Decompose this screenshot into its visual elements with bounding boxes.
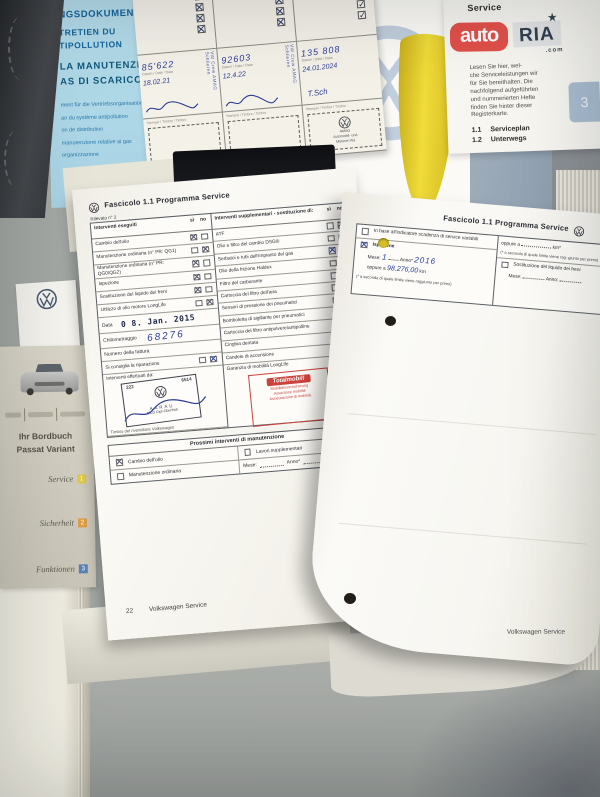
- stamp-checkbox: ✕: [197, 25, 206, 34]
- blank-line: [521, 241, 551, 248]
- service-stamp-card: ✕✕✕✕ ✕✕✕✕ ✓✓✓✓ 85'622 Datum / Date / Dat…: [132, 0, 387, 171]
- stitch-line: [8, 16, 34, 80]
- dealer-stamp: 222 6514 AARAU 5023 Gipf-Oberfrick: [121, 374, 202, 428]
- next-service-boxes: ✕ In base all'indicatore scadenza di ser…: [351, 223, 600, 315]
- vw-logo-icon: [573, 223, 585, 235]
- checkbox-si: ✕: [195, 300, 202, 307]
- vw-logo-icon: [337, 115, 351, 129]
- checkbox: ✕: [117, 473, 124, 480]
- brake-fluid-label: Sostituzione del liquido dei freni: [513, 262, 581, 274]
- mese-label: Mese:: [243, 462, 257, 469]
- autoria-watermark: auto RIA ★ .com: [450, 21, 561, 52]
- warranty-label: Garanzia di mobilità LongLife: [227, 362, 289, 372]
- right-page-title: Fascicolo 1.1 Programma Service: [443, 214, 569, 234]
- bordbuch-item-funktionen: Funktionen 3: [36, 563, 88, 574]
- handwritten-month: 1: [382, 253, 388, 262]
- dealer-number-right: 6514: [181, 376, 192, 382]
- anno-label: Anno:: [546, 278, 559, 284]
- bordbuch-item-label: Sicherheit: [40, 518, 74, 529]
- stamp-checkbox: ✕: [196, 14, 205, 23]
- stamp-card-cell: 135 808 Datum / Date / Data 24.01.2024 T…: [297, 35, 382, 106]
- brake-fluid-option: ✕ Sostituzione del liquido dei freni Mes…: [494, 257, 600, 307]
- oppure-label: oppure a: [367, 265, 386, 272]
- stamp-card-cell: ✕✕✕✕: [132, 0, 217, 56]
- page-crease: [348, 413, 595, 435]
- bordbuch-item-label: Funktionen: [36, 564, 75, 575]
- checkbox-no: ✕: [202, 246, 209, 253]
- bordbuch-title-line2: Passat Variant: [0, 442, 94, 456]
- stamp-card-cell: ✕✕✕✕: [212, 0, 297, 49]
- checkbox-no: ✕: [201, 233, 208, 240]
- handwritten-year: 2016: [414, 255, 436, 266]
- index-item-label: Serviceplan: [490, 125, 530, 133]
- km-unit: km*: [552, 246, 561, 252]
- checkbox-si: ✕: [199, 357, 206, 364]
- checkbox-si: ✕: [193, 274, 200, 281]
- anno-label: Anno*: [400, 258, 413, 264]
- stamp-card-cell: 85'622 Datum / Date / Data 18.02.21 VW C…: [138, 49, 223, 120]
- binder-hole: [344, 593, 356, 604]
- checkbox-si: ✕: [327, 223, 334, 230]
- bar-divider: [56, 408, 57, 421]
- anno-label: Anno*: [286, 459, 300, 466]
- km-unit: km: [419, 270, 426, 276]
- service-index-list: 1.1 Serviceplan 1.2 Unterwegs: [472, 123, 600, 145]
- cover-divider-bars: [5, 407, 85, 421]
- bar-segment: [28, 412, 53, 417]
- date-label: Data: [102, 322, 113, 329]
- car-wheel: [66, 388, 73, 395]
- stamp-checkbox: ✓: [358, 11, 367, 20]
- bordbuch-item-label: Service: [48, 474, 73, 484]
- stamp-checkbox: ✕: [275, 0, 284, 5]
- stitch-line: [4, 130, 30, 188]
- right-page-footer: Volkswagen Service: [507, 629, 565, 636]
- page-number: 22: [126, 607, 134, 615]
- checkbox-si: ✕: [191, 247, 198, 254]
- checkbox: ✕: [116, 459, 123, 466]
- checkbox-no: ✕: [204, 273, 211, 280]
- executed-rows: Cambio dell'olio ✕ ✕ Manutenzione ordina…: [92, 230, 218, 318]
- blank-line: [560, 277, 582, 284]
- bordbuch-item-number: 2: [78, 518, 87, 527]
- vw-logo-icon: [88, 200, 100, 212]
- page-crease: [339, 523, 586, 545]
- checkbox: ✕: [244, 449, 251, 456]
- col-si: sì: [186, 217, 197, 224]
- next-maint-label: Manutenzione ordinaria: [129, 468, 182, 478]
- index-item-number: 1.2: [472, 137, 482, 144]
- stamp-checkbox: ✓: [357, 0, 366, 8]
- photo-scene: Service Lesen Sie hier, wel- che Service…: [0, 0, 600, 797]
- next-service-box-right: oppure a km* (* a seconda di quale limit…: [493, 236, 600, 314]
- bordbuch-item-sicherheit: Sicherheit 2: [40, 517, 87, 528]
- left-page-footer: 22 Volkswagen Service: [126, 602, 208, 615]
- inspection-option: ✕ Ispezione Mese: 1 Anno* 2016 oppure a …: [352, 237, 497, 305]
- bar-segment: [5, 412, 21, 417]
- checkbox-si: ✕: [190, 234, 197, 241]
- index-item-label: Unterwegs: [491, 136, 527, 144]
- autoria-ria-logo: RIA ★ .com: [513, 20, 562, 47]
- bar-segment: [60, 411, 85, 416]
- stamp-checkbox: ✕: [276, 7, 285, 16]
- col-no: no: [197, 216, 208, 223]
- car-wheel: [27, 388, 34, 395]
- blank-line: [260, 461, 284, 468]
- mileage-value: 68276: [146, 328, 185, 343]
- bordbuch-item-service: Service 1: [48, 473, 86, 484]
- checkbox-no: ✕: [210, 356, 217, 363]
- bordbuch-cover: Ihr Bordbuch Passat Variant Service 1 Si…: [0, 345, 96, 589]
- totalmobil-stamp: Totalmobil! Mobilitätsversicherung Assur…: [248, 368, 333, 428]
- service-index-title: Service: [467, 0, 600, 13]
- next-service-box-left: ✕ In base all'indicatore scadenza di ser…: [352, 224, 499, 304]
- checkbox: ✕: [501, 262, 508, 269]
- bar-divider: [24, 408, 25, 421]
- passat-car-image: [20, 361, 79, 396]
- checkbox-stack: ✕✕✕✕: [135, 0, 212, 39]
- oppure-label: oppure a: [501, 241, 520, 248]
- amag-stamp-line: Motoren AG: [336, 138, 356, 145]
- index-item: 1.2 Unterwegs: [472, 133, 600, 145]
- vw-logo-icon: [35, 287, 58, 310]
- checkbox-stack: ✓✓✓✓: [295, 0, 373, 25]
- invoice-label: Numero della fattura: [104, 348, 150, 358]
- mileage-label: Chilometraggio: [103, 335, 137, 344]
- dealer-number-left: 222: [126, 384, 134, 390]
- star-icon: ★: [548, 13, 558, 24]
- mese-label: Mese:: [508, 275, 521, 281]
- stamp-checkbox: ✕: [277, 18, 286, 27]
- autoria-com-text: .com: [546, 47, 564, 54]
- bordbuch-item-number: 3: [79, 564, 88, 573]
- next-extra-label: Lavori supplementari: [256, 445, 303, 455]
- checkbox-si: ✕: [194, 287, 201, 294]
- checkbox: ✕: [361, 241, 368, 248]
- signature: T.Sch: [307, 87, 328, 99]
- checkbox-no: ✕: [203, 259, 210, 266]
- next-oil-label: Cambio dell'olio: [128, 456, 164, 465]
- binder-hole: [385, 316, 396, 326]
- bordbuch-item-number: 1: [77, 474, 86, 483]
- col-si: sì: [323, 206, 334, 213]
- maintenance-table: Interventi eseguiti sì no Cambio dell'ol…: [90, 202, 365, 438]
- autoria-auto-logo: auto: [450, 22, 509, 52]
- register-tab-3: 3: [568, 81, 600, 122]
- bordbuch-title: Ihr Bordbuch Passat Variant: [0, 429, 94, 456]
- executed-column: Interventi eseguiti sì no Cambio dell'ol…: [91, 214, 229, 437]
- checkbox-si: ✕: [192, 260, 199, 267]
- handwritten-km: 98.276,00: [387, 265, 419, 275]
- checkbox-si: ✕: [329, 247, 336, 254]
- blank-line: [389, 255, 399, 261]
- footer-text: Volkswagen Service: [149, 602, 208, 614]
- dealer-caption: Timbro del rivenditore Volkswagen: [107, 423, 177, 436]
- index-item-number: 1.1: [472, 127, 482, 134]
- checkbox-no: ✕: [206, 299, 213, 306]
- autoria-ria-text: RIA: [519, 24, 556, 47]
- dealer-stamp-area: Interventi effettuati da: 222 6514 AARAU…: [103, 366, 227, 437]
- car-grill: [35, 382, 65, 387]
- blank-line: [523, 274, 545, 281]
- checkbox-si: ✕: [328, 235, 335, 242]
- checkbox-no: ✕: [205, 286, 212, 293]
- mese-label: Mese:: [367, 255, 380, 261]
- checkbox: ✕: [362, 228, 369, 235]
- totalmobil-line: Assicurazione di mobilità: [269, 395, 311, 403]
- stamp-checkbox: ✕: [195, 3, 204, 12]
- white-card-vw: [16, 280, 81, 354]
- stamp-card-cell: 92603 Datum / Date / Data 12.4.22 VW Cre…: [217, 42, 302, 113]
- binder-hole-yellow: [378, 238, 389, 248]
- checkbox-stack: ✕✕✕✕: [215, 0, 292, 32]
